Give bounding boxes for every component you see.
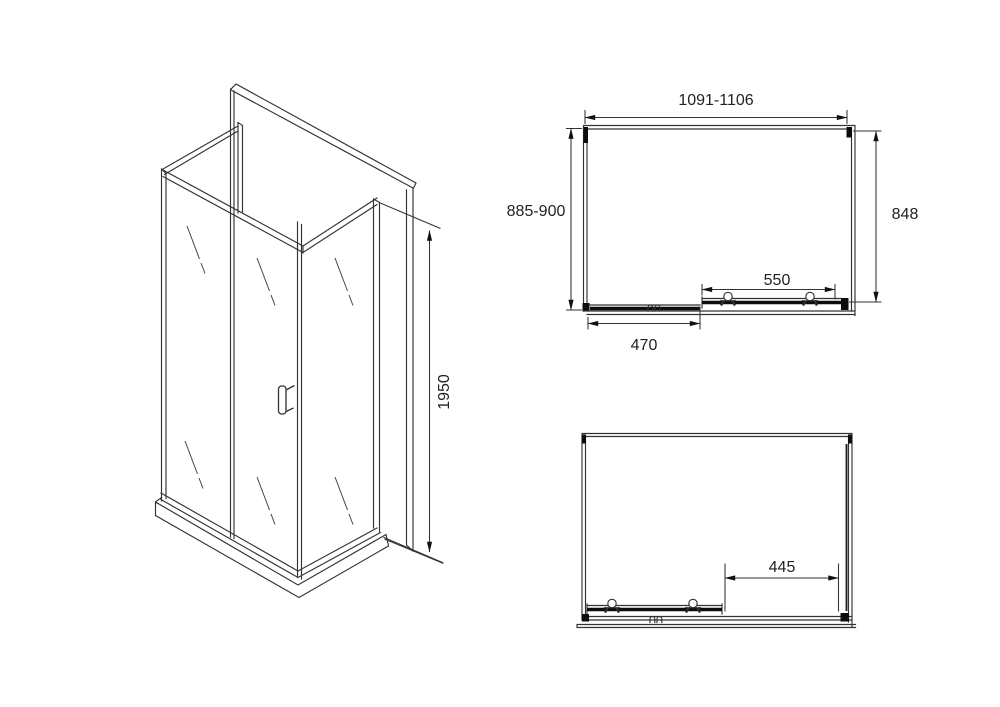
plan-outline bbox=[584, 126, 856, 316]
wall-profile-bottom-left bbox=[583, 303, 590, 312]
wall-profile-top-right bbox=[848, 435, 852, 444]
plan-outline bbox=[582, 434, 852, 627]
base-tray bbox=[156, 493, 389, 598]
dim-depth-left-label: 885-900 bbox=[507, 203, 566, 220]
bottom-track bbox=[582, 617, 852, 621]
dim-fixed-panel-label: 470 bbox=[631, 337, 658, 354]
wall-profile-top-left bbox=[584, 127, 589, 143]
technical-drawing: 1950 1091-1106 885-900 bbox=[0, 0, 1000, 707]
track-end-right bbox=[841, 613, 850, 622]
track-end-left bbox=[582, 614, 589, 622]
isometric-view: 1950 bbox=[156, 84, 454, 598]
dim-door-label: 550 bbox=[764, 272, 791, 289]
door-division-posts bbox=[231, 89, 235, 539]
dim-height-label: 1950 bbox=[436, 374, 453, 410]
right-side-panel bbox=[303, 198, 380, 532]
door-handle-icon bbox=[279, 386, 295, 415]
glass-reflection-marks bbox=[185, 226, 353, 525]
dimension-width-range: 1091-1106 bbox=[585, 92, 847, 124]
dim-width-label: 1091-1106 bbox=[678, 92, 753, 109]
dimension-fixed-panel: 470 bbox=[588, 307, 700, 355]
bottom-plan-view: 445 bbox=[577, 434, 856, 628]
top-plan-view: 1091-1106 885-900 848 550 470 bbox=[507, 92, 919, 354]
dimension-sliding-door: 550 bbox=[702, 272, 835, 300]
dimension-depth-range: 885-900 bbox=[507, 129, 582, 311]
dim-inner-depth-label: 848 bbox=[892, 206, 919, 223]
wall-profile-top-right bbox=[847, 127, 853, 138]
bottom-track bbox=[584, 297, 856, 315]
dimension-inner-depth: 848 bbox=[849, 131, 918, 302]
bottom-sill bbox=[577, 625, 856, 628]
wall-profile-top-left bbox=[582, 435, 586, 444]
dim-opening-label: 445 bbox=[769, 559, 796, 576]
door-end-cap bbox=[841, 298, 849, 310]
dimension-opening: 445 bbox=[725, 559, 839, 612]
dimension-height: 1950 bbox=[379, 203, 453, 564]
